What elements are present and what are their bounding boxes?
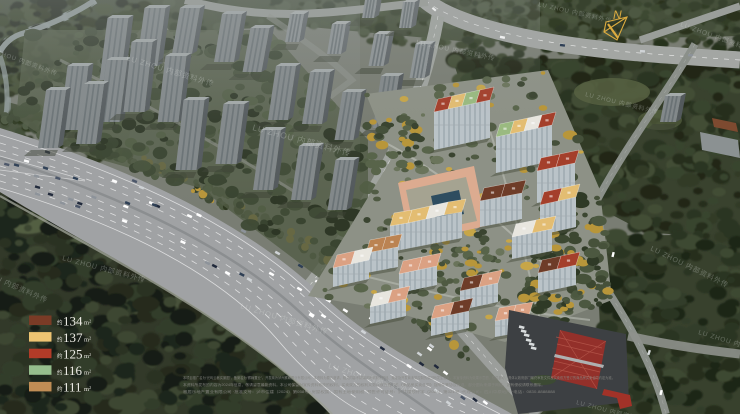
svg-text:本资料所发布的内容为2024年信息，敬请留意最新资料。本公司: 本资料所发布的内容为2024年信息，敬请留意最新资料。本公司保留对宣传资料修改的… [183,382,545,387]
svg-text:134: 134 [63,313,83,328]
svg-text:N: N [613,8,622,22]
svg-text:116: 116 [63,363,83,378]
svg-text:111: 111 [63,380,82,395]
svg-text:125: 125 [63,347,83,362]
svg-text:本项目推广名为“光屿云著实景图”，备案名为“察翰置业”。开发: 本项目推广名为“光屿云著实景图”，备案名为“察翰置业”。开发商为泸州察翰置业有限… [183,375,615,380]
svg-text:137: 137 [63,330,83,345]
svg-text:雅居乐地产置业有限公司 ·批准文号：泸市住建（2024）第0: 雅居乐地产置业有限公司 ·批准文号：泸市住建（2024）第058号 ·房屋权属：… [183,389,555,394]
